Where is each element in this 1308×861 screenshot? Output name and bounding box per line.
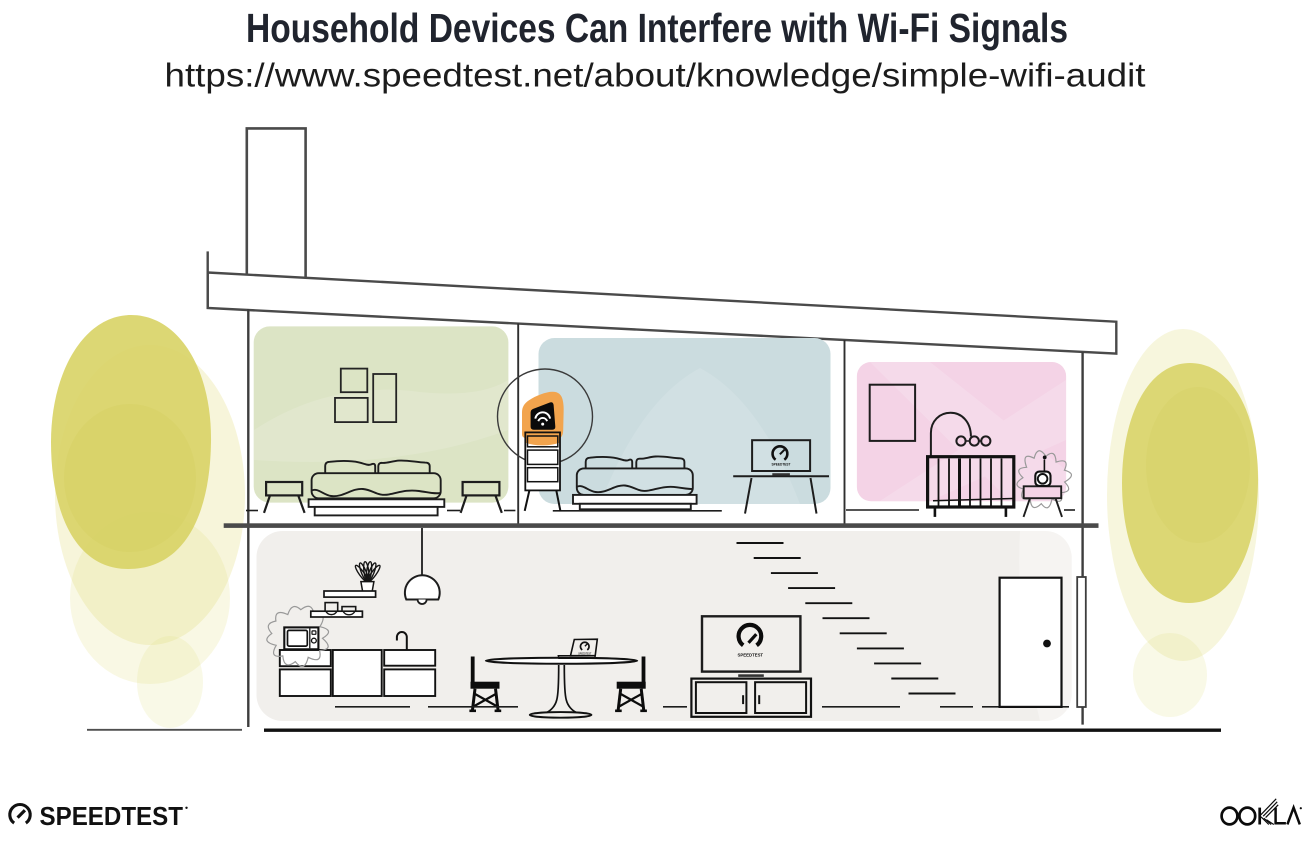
- svg-text:SPEEDTEST: SPEEDTEST: [772, 462, 792, 466]
- svg-text:https://www.speedtest.net/abou: https://www.speedtest.net/about/knowledg…: [165, 58, 1147, 95]
- svg-text:SPEEDTEST: SPEEDTEST: [40, 803, 184, 831]
- svg-text:Household Devices Can Interfer: Household Devices Can Interfere with Wi-…: [246, 5, 1068, 51]
- svg-text:SPEEDTEST: SPEEDTEST: [738, 653, 764, 658]
